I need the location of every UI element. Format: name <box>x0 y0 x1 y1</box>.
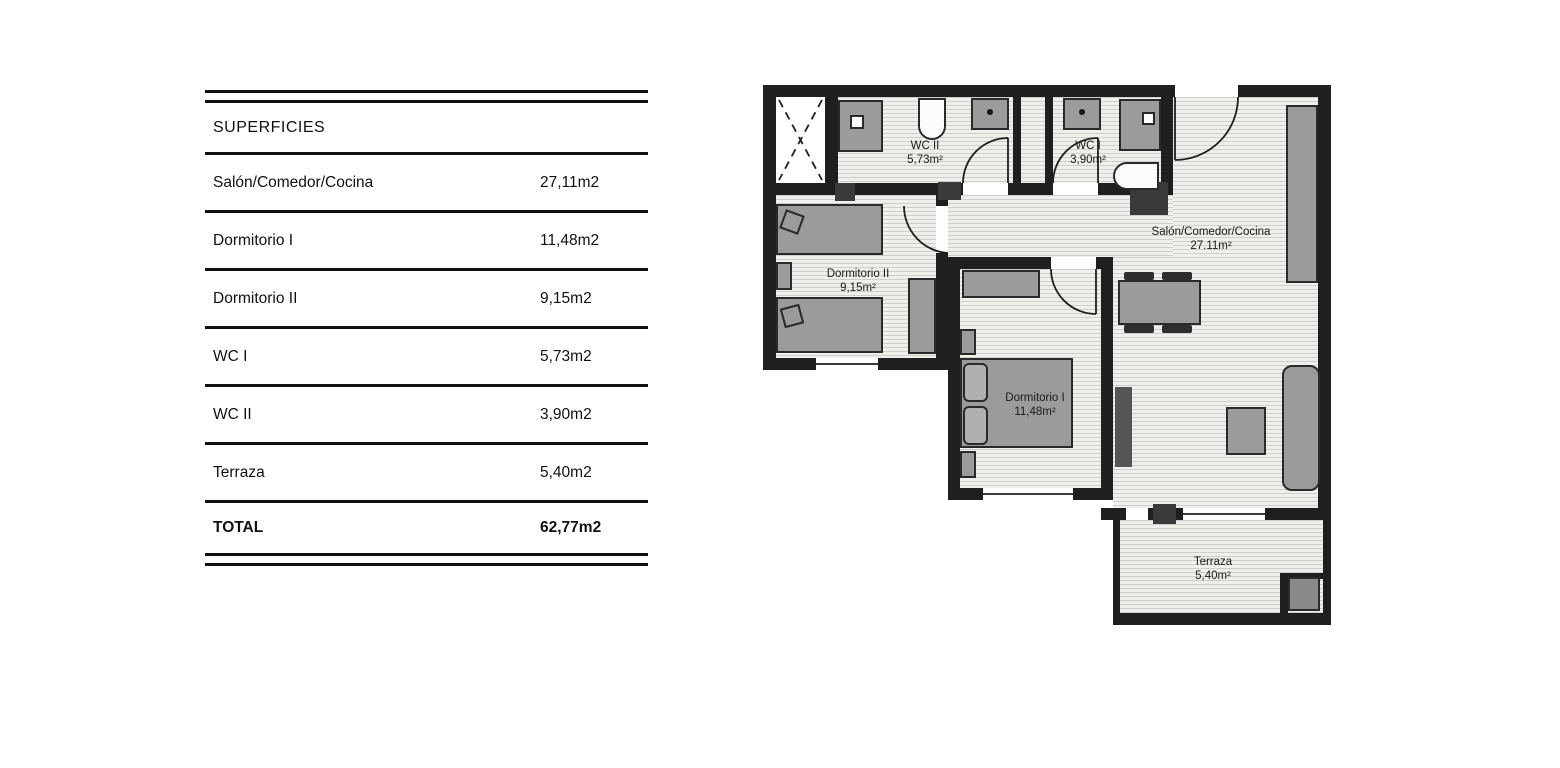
room-area: 5,73m² <box>907 153 943 167</box>
floorplan-sheet: SUPERFICIES Salón/Comedor/Cocina 27,11m2… <box>0 0 1560 768</box>
door-swing-arcs <box>758 85 1338 630</box>
door-swing-bedroom1 <box>1051 269 1096 314</box>
room-label-wc1: WC I 3,90m² <box>1070 139 1106 167</box>
row-value: 3,90m2 <box>540 406 592 424</box>
shaft-cross-icon <box>779 100 822 180</box>
row-value: 5,73m2 <box>540 348 592 366</box>
total-label: TOTAL <box>213 519 263 537</box>
room-label-bedroom1: Dormitorio I 11,48m² <box>1005 391 1064 419</box>
table-row: Dormitorio II 9,15m2 <box>205 271 648 329</box>
row-value: 27,11m2 <box>540 174 599 192</box>
room-label-terrace: Terraza 5,40m² <box>1194 555 1232 583</box>
room-name: Salón/Comedor/Cocina <box>1152 225 1271 239</box>
row-label: WC II <box>213 406 252 424</box>
table-row: Dormitorio I 11,48m2 <box>205 213 648 271</box>
table-top-double-rule <box>205 90 648 103</box>
row-label: WC I <box>213 348 247 366</box>
table-row: WC II 3,90m2 <box>205 387 648 445</box>
total-value: 62,77m2 <box>540 519 601 537</box>
floor-plan: WC II 5,73m² WC I 3,90m² Salón/Comedor/C… <box>758 85 1338 630</box>
door-swing-entrance <box>1175 97 1238 160</box>
room-name: WC I <box>1070 139 1106 153</box>
table-bottom-double-rule <box>205 553 648 566</box>
room-area: 9,15m² <box>827 281 890 295</box>
door-swing-bedroom2 <box>904 206 948 253</box>
row-value: 9,15m2 <box>540 290 592 308</box>
row-label: Dormitorio II <box>213 290 297 308</box>
room-name: WC II <box>907 139 943 153</box>
table-title: SUPERFICIES <box>213 119 325 137</box>
room-name: Dormitorio I <box>1005 391 1064 405</box>
room-label-living: Salón/Comedor/Cocina 27.11m² <box>1152 225 1271 253</box>
room-name: Dormitorio II <box>827 267 890 281</box>
room-area: 3,90m² <box>1070 153 1106 167</box>
row-value: 11,48m2 <box>540 232 599 250</box>
room-name: Terraza <box>1194 555 1232 569</box>
row-label: Terraza <box>213 464 265 482</box>
table-row: WC I 5,73m2 <box>205 329 648 387</box>
row-label: Dormitorio I <box>213 232 293 250</box>
table-total-row: TOTAL 62,77m2 <box>205 503 648 553</box>
row-value: 5,40m2 <box>540 464 592 482</box>
room-label-wc2: WC II 5,73m² <box>907 139 943 167</box>
row-label: Salón/Comedor/Cocina <box>213 174 373 192</box>
room-area: 27.11m² <box>1152 239 1271 253</box>
door-swing-wc2 <box>963 138 1008 183</box>
table-row: Terraza 5,40m2 <box>205 445 648 503</box>
room-label-bedroom2: Dormitorio II 9,15m² <box>827 267 890 295</box>
surfaces-table: SUPERFICIES Salón/Comedor/Cocina 27,11m2… <box>205 90 648 566</box>
room-area: 11,48m² <box>1005 405 1064 419</box>
table-row: Salón/Comedor/Cocina 27,11m2 <box>205 155 648 213</box>
table-header-row: SUPERFICIES <box>205 103 648 155</box>
room-area: 5,40m² <box>1194 569 1232 583</box>
